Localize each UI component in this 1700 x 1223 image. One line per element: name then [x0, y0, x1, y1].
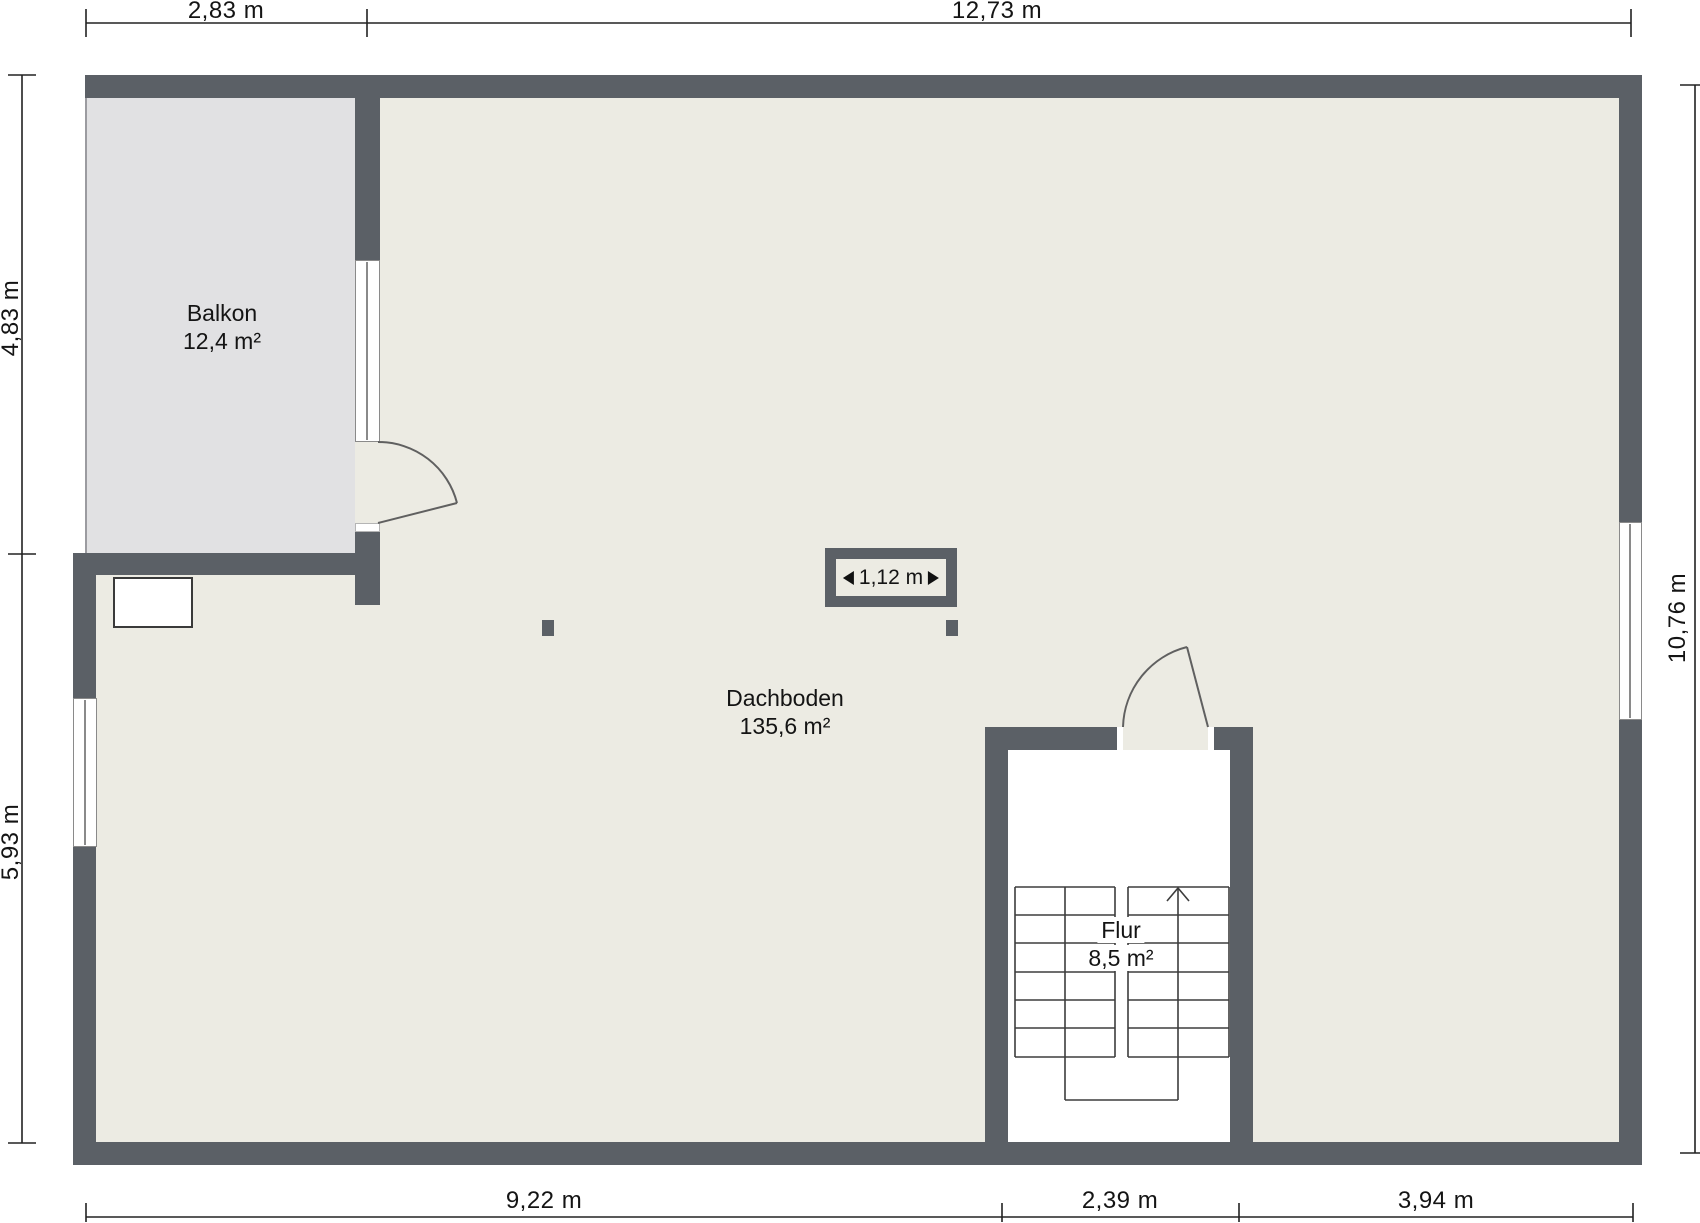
dim-left-1: 4,83 m	[0, 280, 25, 356]
dim-line-left	[8, 75, 36, 1143]
floor-plan: 2,83 m 12,73 m 4,83 m 5,93 m 10,76 m 9,2…	[0, 0, 1700, 1223]
room-name: Flur	[1084, 916, 1157, 944]
dimension-lines	[8, 9, 1700, 1222]
flur-door-arc	[1123, 647, 1187, 727]
chimney-width-value: 1,12 m	[859, 566, 923, 590]
dim-top-2: 12,73 m	[952, 0, 1042, 25]
dim-bottom-1: 9,22 m	[506, 1187, 582, 1215]
flur-door	[1123, 647, 1208, 727]
dim-bottom-3: 3,94 m	[1398, 1187, 1474, 1215]
room-area: 135,6 m²	[726, 712, 844, 740]
arrow-left-icon	[843, 571, 854, 585]
chimney-dimension: 1,12 m	[843, 566, 939, 590]
balcony-door-arc	[378, 442, 457, 503]
balcony-door-leaf	[378, 503, 457, 523]
plan-drawing	[0, 0, 1700, 1223]
flur-door-leaf	[1187, 647, 1208, 727]
room-label-flur: Flur 8,5 m²	[1084, 916, 1157, 972]
room-area: 12,4 m²	[183, 327, 261, 355]
arrow-right-icon	[928, 571, 939, 585]
room-area: 8,5 m²	[1084, 944, 1157, 972]
dim-right-1: 10,76 m	[1664, 573, 1692, 663]
room-label-balkon: Balkon 12,4 m²	[183, 299, 261, 355]
dim-line-top	[86, 9, 1631, 37]
dim-bottom-2: 2,39 m	[1082, 1187, 1158, 1215]
dim-top-1: 2,83 m	[188, 0, 264, 25]
room-name: Dachboden	[726, 684, 844, 712]
dim-left-2: 5,93 m	[0, 804, 25, 880]
balcony-door	[378, 442, 457, 523]
room-label-dachboden: Dachboden 135,6 m²	[726, 684, 844, 740]
room-name: Balkon	[183, 299, 261, 327]
